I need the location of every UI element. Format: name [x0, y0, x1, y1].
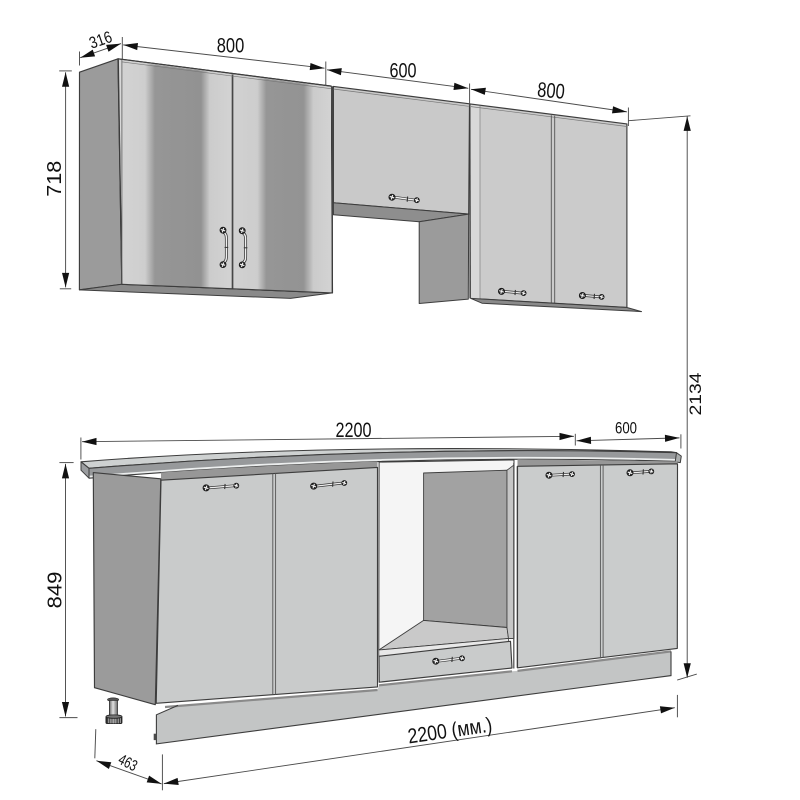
- svg-text:2134: 2134: [686, 373, 705, 416]
- svg-text:718: 718: [44, 161, 66, 197]
- svg-text:600: 600: [390, 59, 417, 82]
- svg-text:600: 600: [615, 419, 637, 438]
- svg-text:800: 800: [217, 34, 245, 57]
- svg-text:800: 800: [536, 79, 565, 104]
- svg-text:2200: 2200: [336, 419, 372, 442]
- svg-text:849: 849: [44, 572, 66, 609]
